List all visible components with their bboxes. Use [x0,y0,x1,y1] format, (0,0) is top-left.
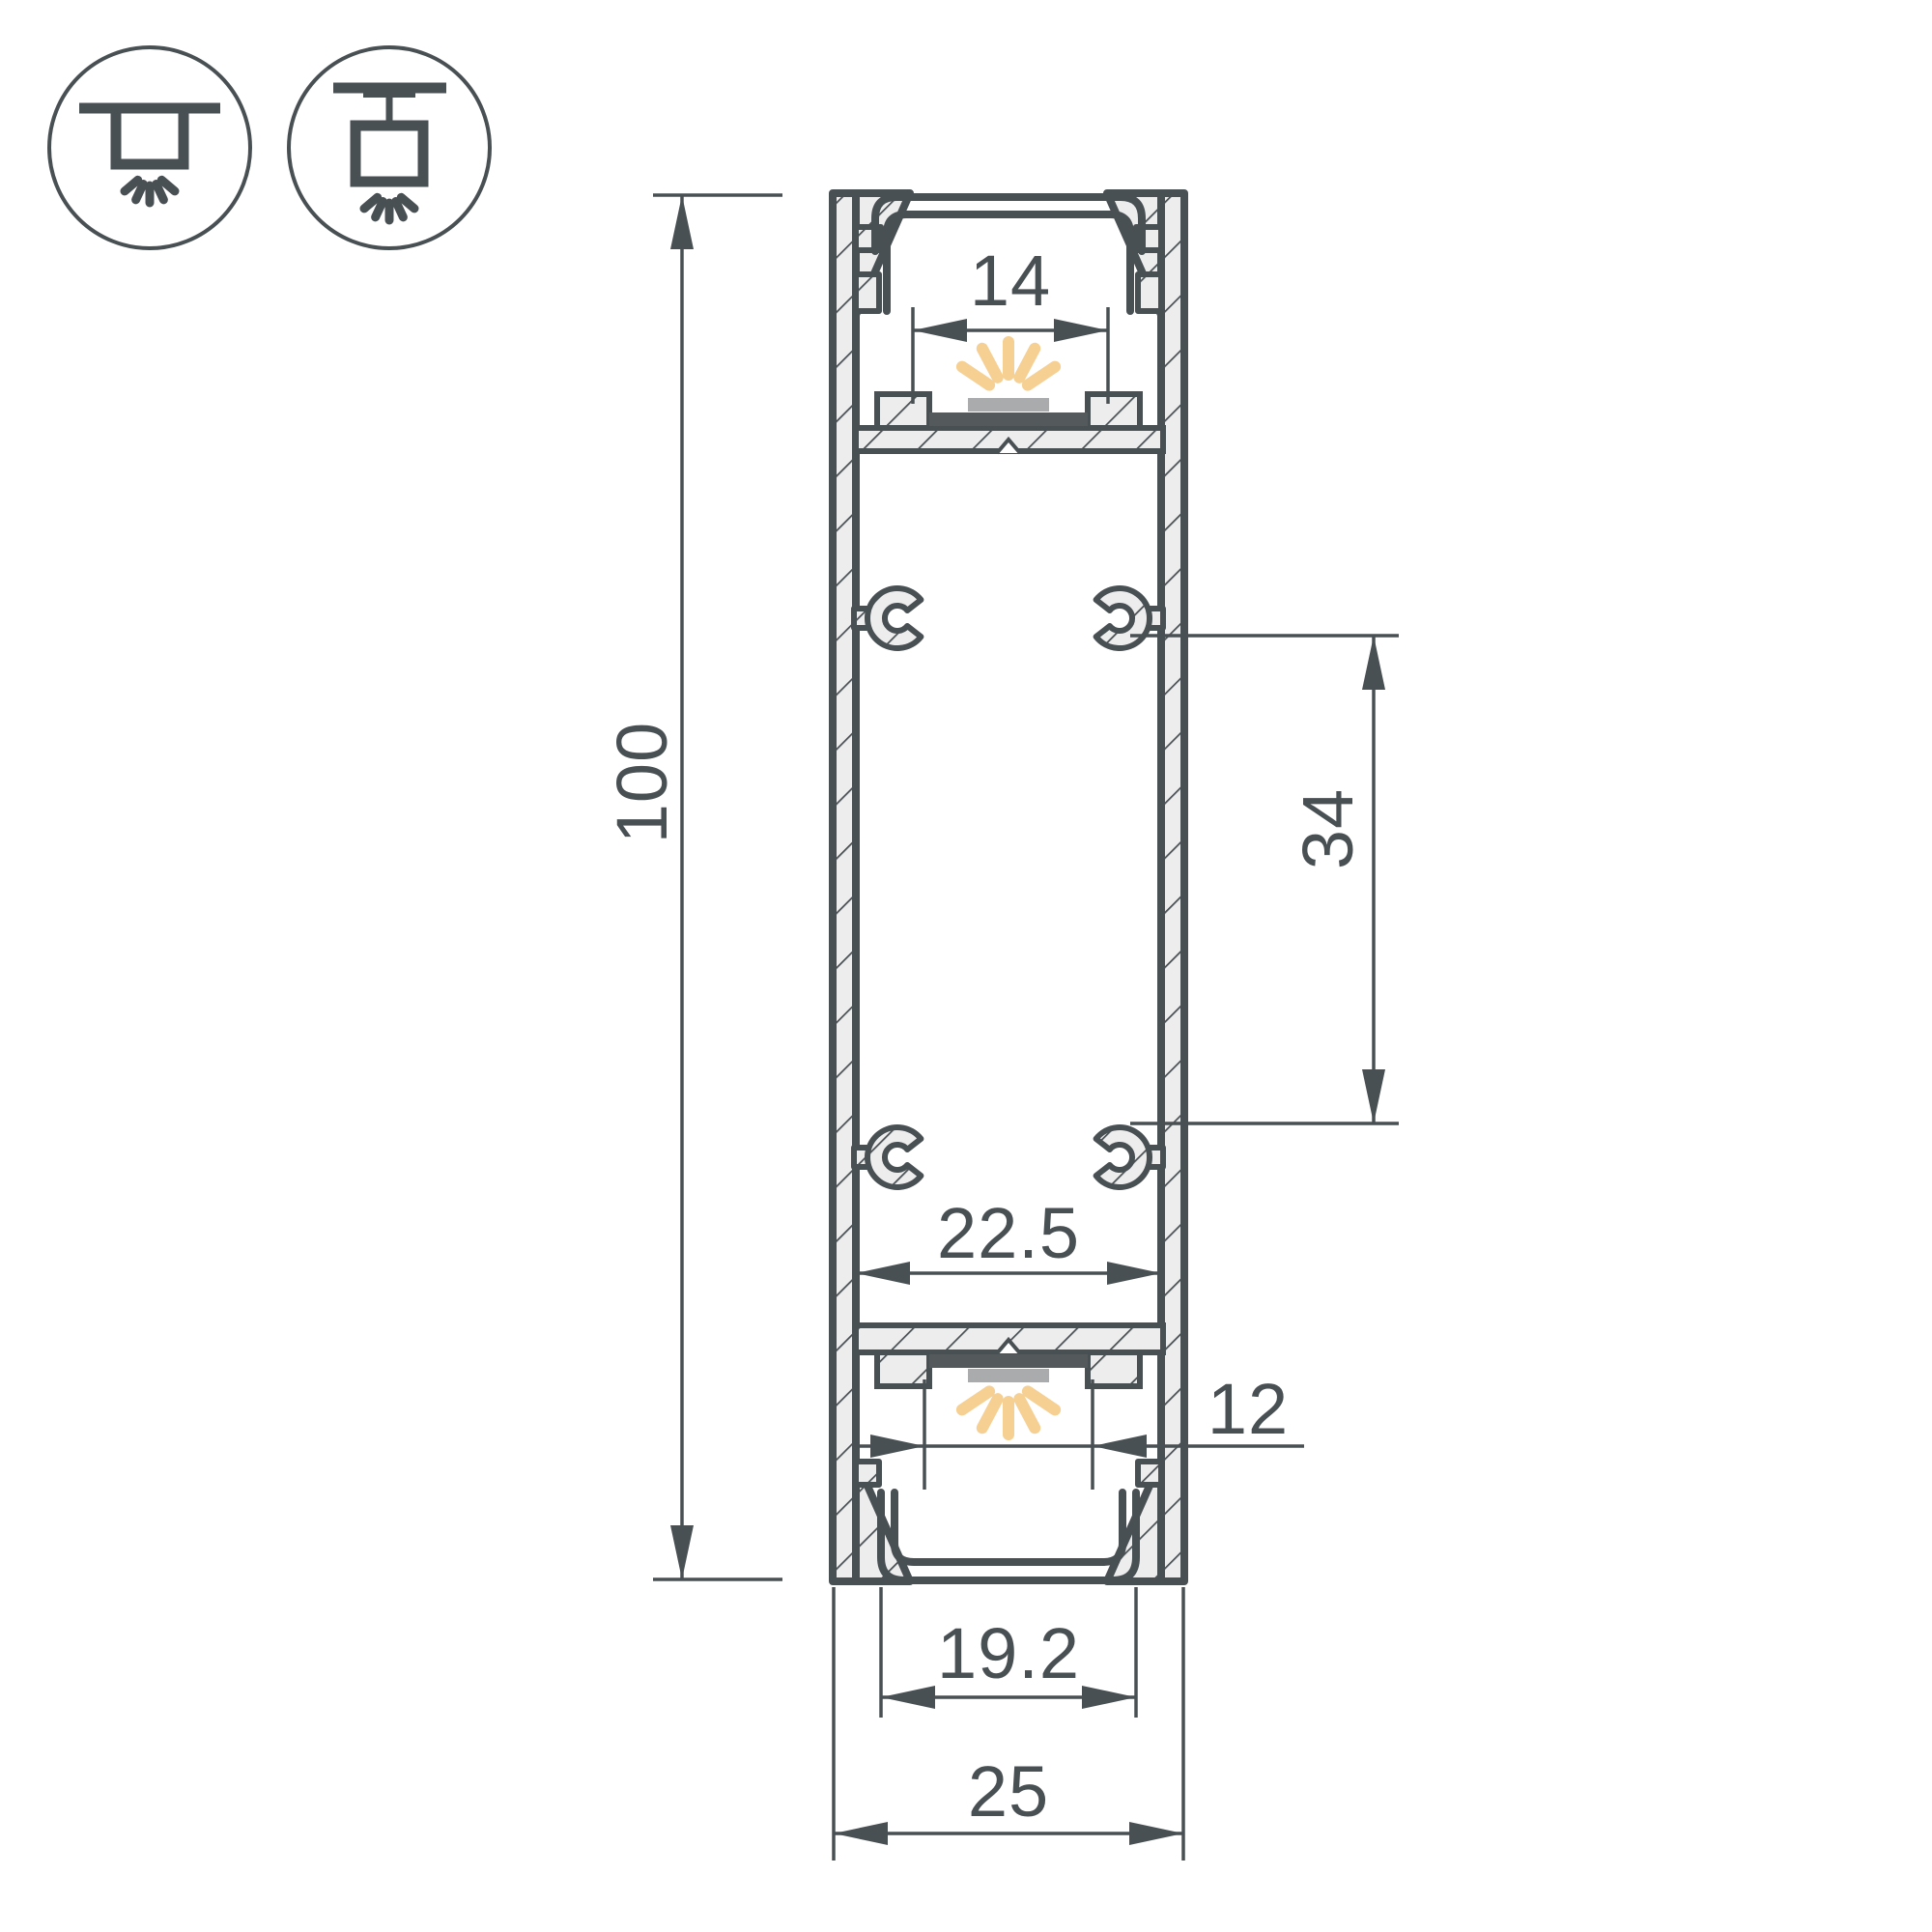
strip-seat-right [1088,394,1140,428]
luminaire-box [355,126,423,182]
left-wall [833,193,856,1581]
led-emitter [968,1369,1049,1382]
arrowhead-down [1362,1069,1385,1123]
arrowhead-left [881,1686,935,1709]
recessed-box [116,108,184,164]
dim-overall-width-label: 25 [968,1751,1049,1832]
led-glow-rays [962,1391,1055,1435]
strip-seat-left [877,394,929,428]
arrowhead-right [1082,1686,1136,1709]
dim-bottom-led-width-label: 12 [1207,1369,1289,1449]
icon-circle [49,47,250,248]
dimension-overall-height: 100 [602,195,782,1579]
arrowhead-left [913,319,967,342]
dim-inner-width-label: 22.5 [937,1193,1080,1273]
icon-light-rays [125,180,175,203]
c-clip-top-right [1096,588,1150,648]
c-clip-bottom-left [867,1127,921,1187]
led-strip [929,412,1088,426]
arrowhead-left [1093,1435,1147,1458]
diffuser-inner-line [895,1492,1122,1562]
bottom-led-channel [856,1325,1163,1435]
arrowhead-left [856,1262,910,1285]
profile-drawing-svg: 100 14 34 22.5 [0,0,1932,1932]
dim-overall-height-label: 100 [602,722,682,843]
c-clip-bottom-right [1096,1127,1150,1187]
right-wall [1161,193,1184,1581]
dim-clip-spacing-label: 34 [1288,788,1368,869]
led-emitter [968,398,1049,412]
dimension-inner-width: 22.5 [856,1193,1161,1285]
strip-seat-right [1088,1352,1140,1386]
top-led-channel [856,342,1163,453]
arrowhead-down [670,1525,694,1579]
profile-cross-section [833,193,1184,1581]
arrowhead-left [834,1822,888,1845]
arrowhead-up [1362,636,1385,690]
led-strip [929,1354,1088,1368]
surface-mount-icon [289,47,490,248]
dim-top-channel-width-label: 14 [970,241,1051,321]
arrowhead-right [870,1435,924,1458]
arrowhead-right [1107,1262,1161,1285]
arrowhead-right [1129,1822,1183,1845]
c-clip-top-left [867,588,921,648]
arrowhead-up [670,195,694,249]
bottom-diffuser [881,1492,1136,1580]
diffuser-outer-line [881,1492,1136,1580]
screw-bosses [854,588,1163,1187]
dimension-diffuser-width: 19.2 [881,1587,1136,1718]
recessed-mount-icon [49,47,250,248]
led-glow-rays [962,342,1055,385]
icon-light-rays [364,197,414,220]
arrowhead-right [1054,319,1108,342]
strip-seat-left [877,1352,929,1386]
dim-diffuser-width-label: 19.2 [937,1613,1080,1693]
technical-drawing-canvas: 100 14 34 22.5 [0,0,1932,1932]
